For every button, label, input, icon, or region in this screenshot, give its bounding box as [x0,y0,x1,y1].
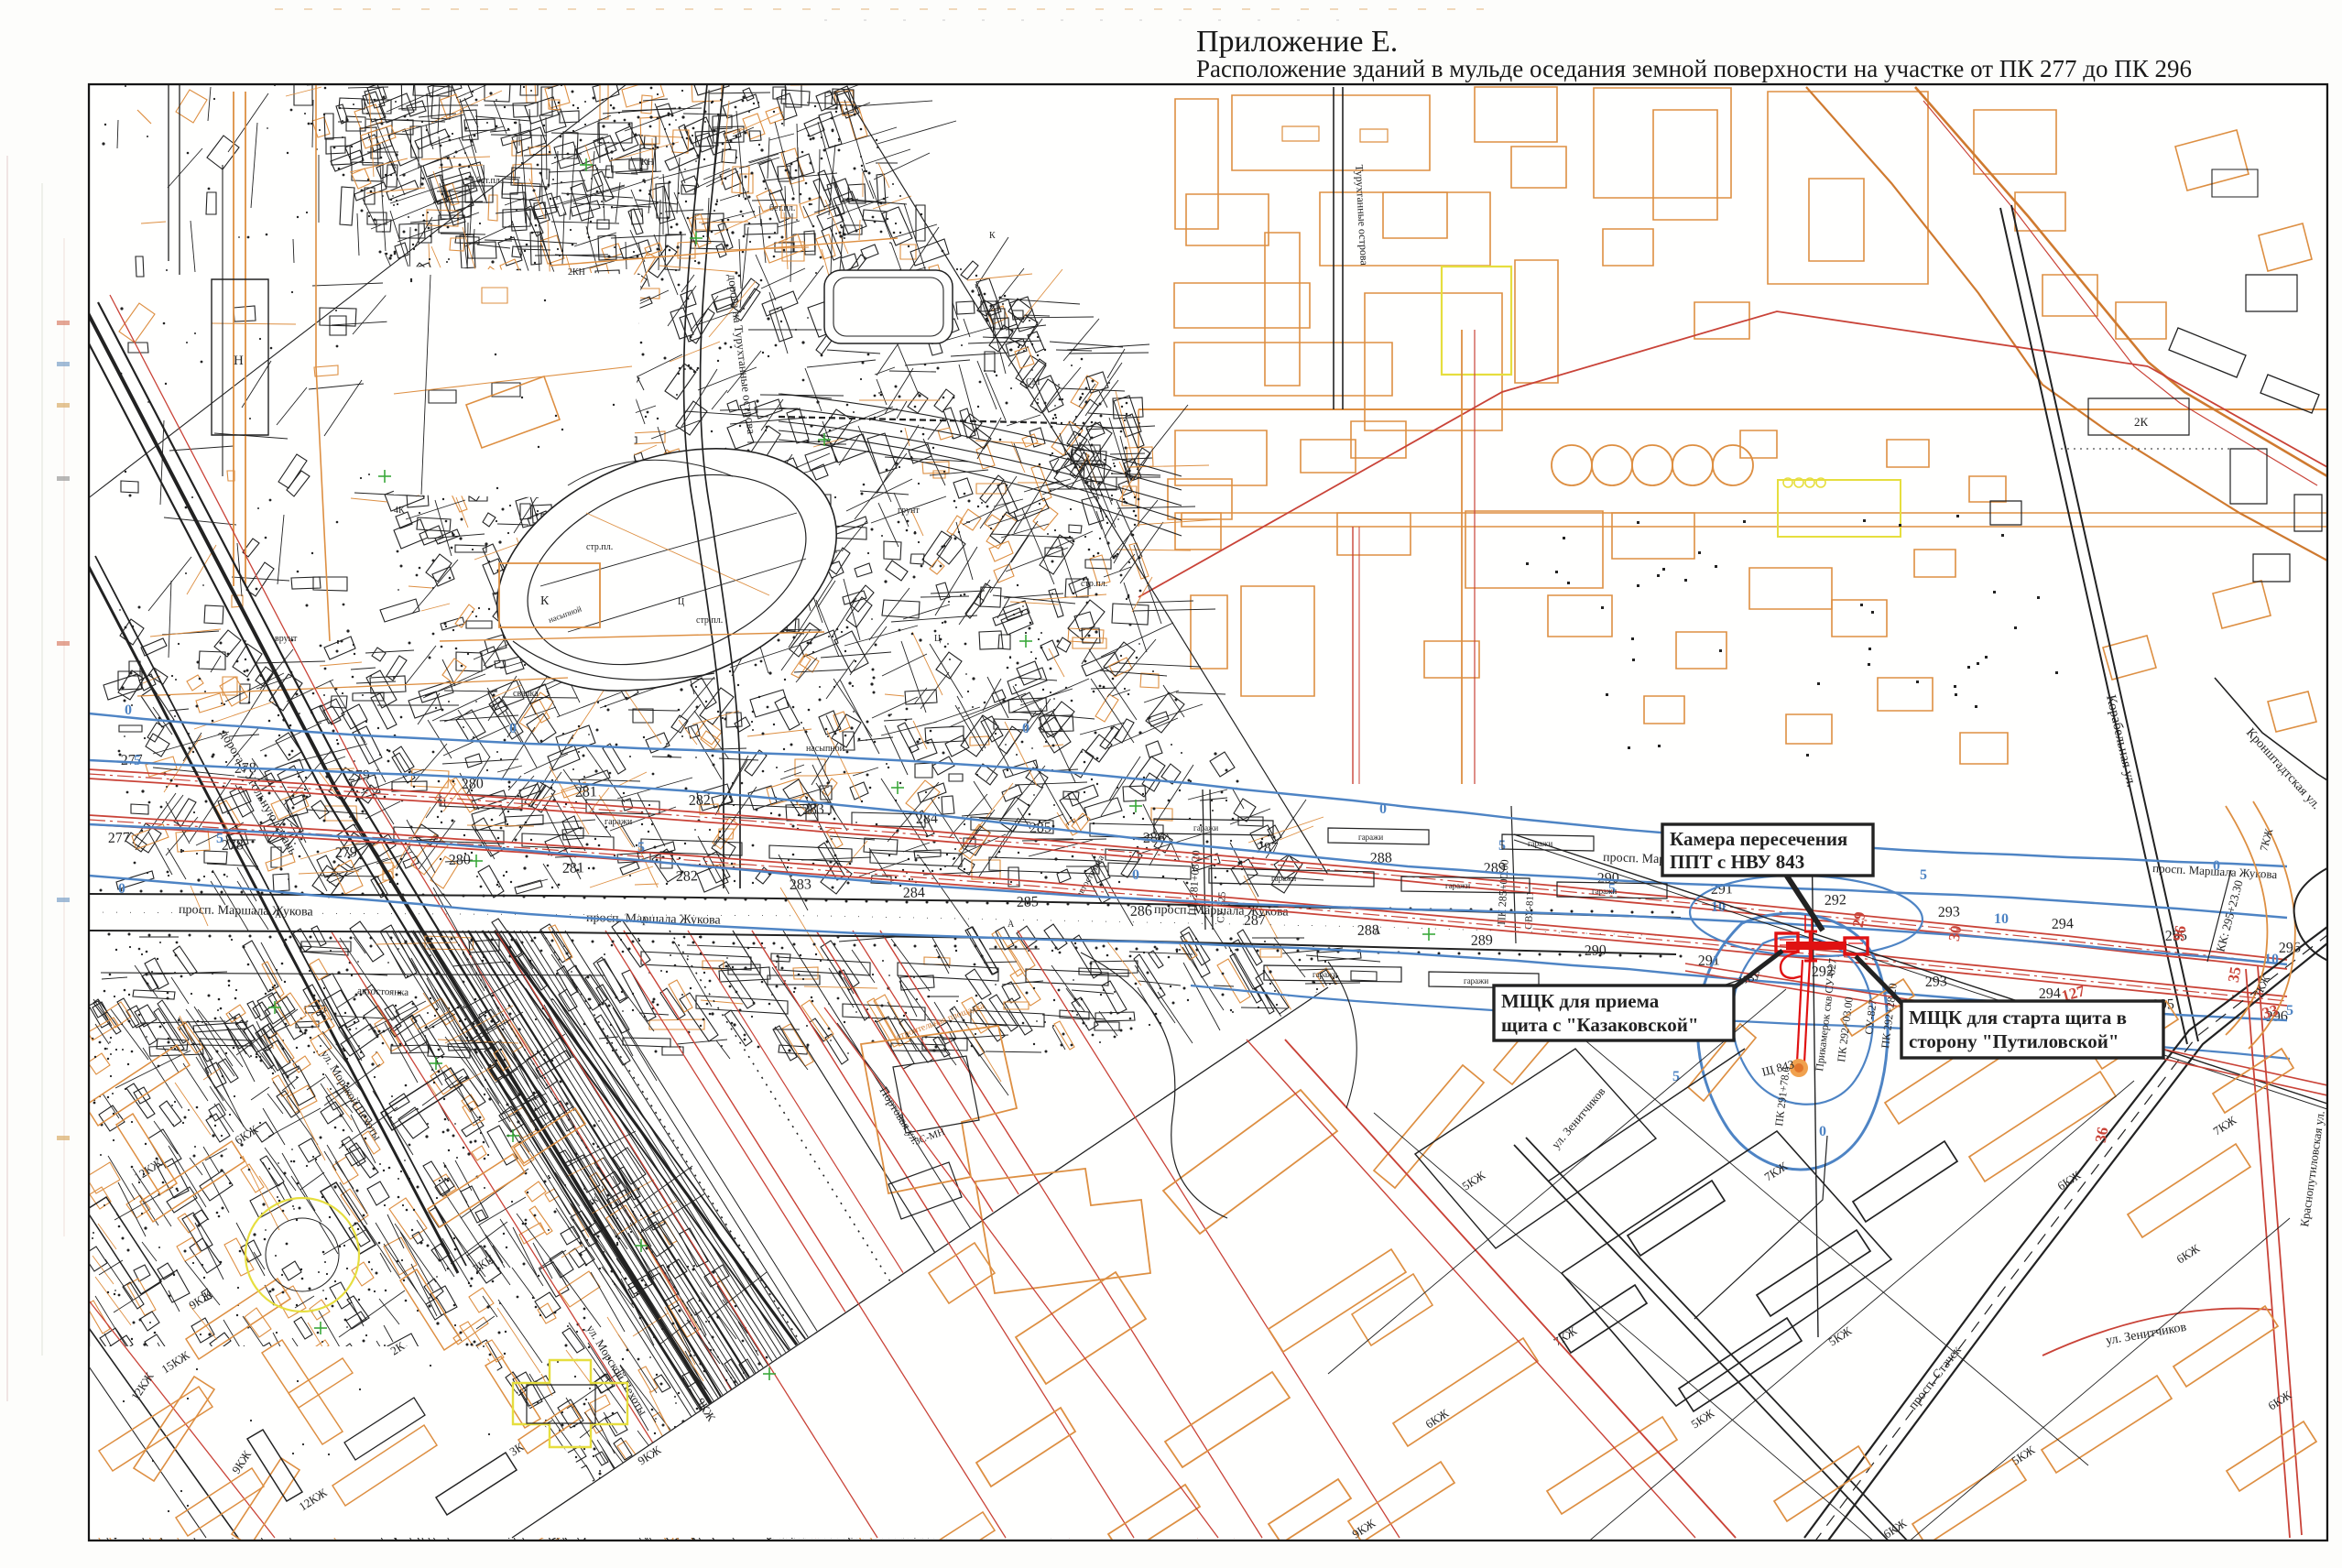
svg-text:К: К [989,231,996,241]
svg-text:свалка: свалка [513,689,539,699]
svg-text:Н: Н [234,354,244,368]
svg-text:КН: КН [641,158,654,168]
svg-text:Ц: Ц [678,597,684,607]
svg-text:2КН: 2КН [568,267,585,278]
svg-text:Ц: Ц [440,799,446,809]
svg-text:стр.пл.: стр.пл. [586,542,613,552]
svg-text:К: К [540,594,550,608]
svg-text:грунт: грунт [898,506,920,516]
svg-text:стр.пл.: стр.пл. [696,615,723,626]
svg-text:2К: 2К [2134,415,2149,429]
svg-text:гаражи: гаражи [605,817,633,827]
svg-text:стр.пл.: стр.пл. [1081,579,1107,589]
svg-text:Ц: Ц [934,634,941,644]
svg-text:СМ: СМ [1026,377,1040,387]
svg-text:врунт: врунт [275,634,298,644]
svg-text:насыпной: насыпной [806,744,845,754]
svg-text:бет.пл.: бет.пл. [476,176,502,186]
svg-text:бет.пл.: бет.пл. [769,203,795,213]
svg-text:4К: 4К [394,506,405,516]
